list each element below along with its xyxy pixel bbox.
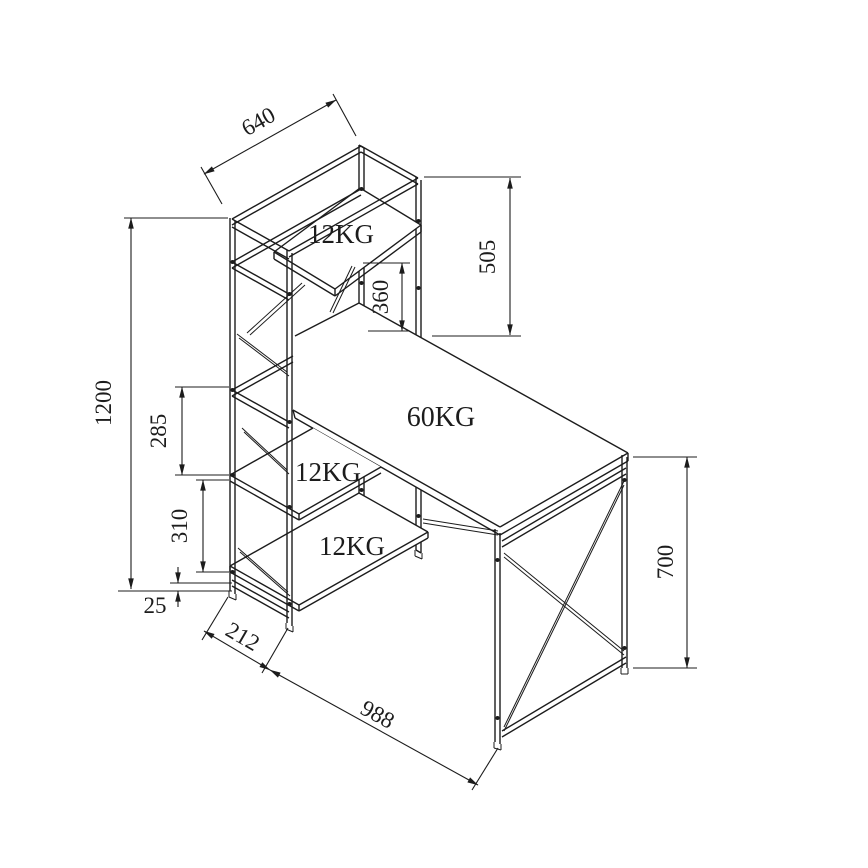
dimension-285: 285 — [146, 387, 229, 475]
load-label-desktop: 60KG — [407, 402, 475, 433]
dimension-310: 310 — [167, 480, 229, 572]
load-label-middle-shelf: 12KG — [295, 457, 361, 487]
load-label-bottom-shelf: 12KG — [319, 531, 385, 561]
dimension-988: 988 — [270, 670, 498, 790]
dimension-700: 700 — [633, 457, 697, 668]
dimension-212: 212 — [202, 597, 288, 673]
dim-label-988: 988 — [356, 695, 398, 733]
top-shelf — [274, 188, 421, 313]
dim-label-700: 700 — [653, 545, 678, 580]
technical-drawing-page: 640 505 360 1200 285 310 25 212 — [0, 0, 868, 868]
dim-label-212: 212 — [222, 617, 264, 656]
dim-label-310: 310 — [167, 509, 192, 544]
dim-label-1200: 1200 — [91, 380, 116, 426]
dimension-640: 640 — [201, 94, 356, 204]
dimension-25: 25 — [118, 567, 232, 618]
dim-label-25: 25 — [144, 593, 167, 618]
dimension-1200: 1200 — [91, 218, 228, 589]
dimension-505: 505 — [424, 177, 521, 336]
dim-label-505: 505 — [475, 240, 500, 275]
dim-label-360: 360 — [368, 280, 393, 315]
desk-dimension-drawing: 640 505 360 1200 285 310 25 212 — [0, 0, 868, 868]
dim-label-285: 285 — [146, 414, 171, 449]
load-label-top-shelf: 12KG — [308, 219, 374, 249]
